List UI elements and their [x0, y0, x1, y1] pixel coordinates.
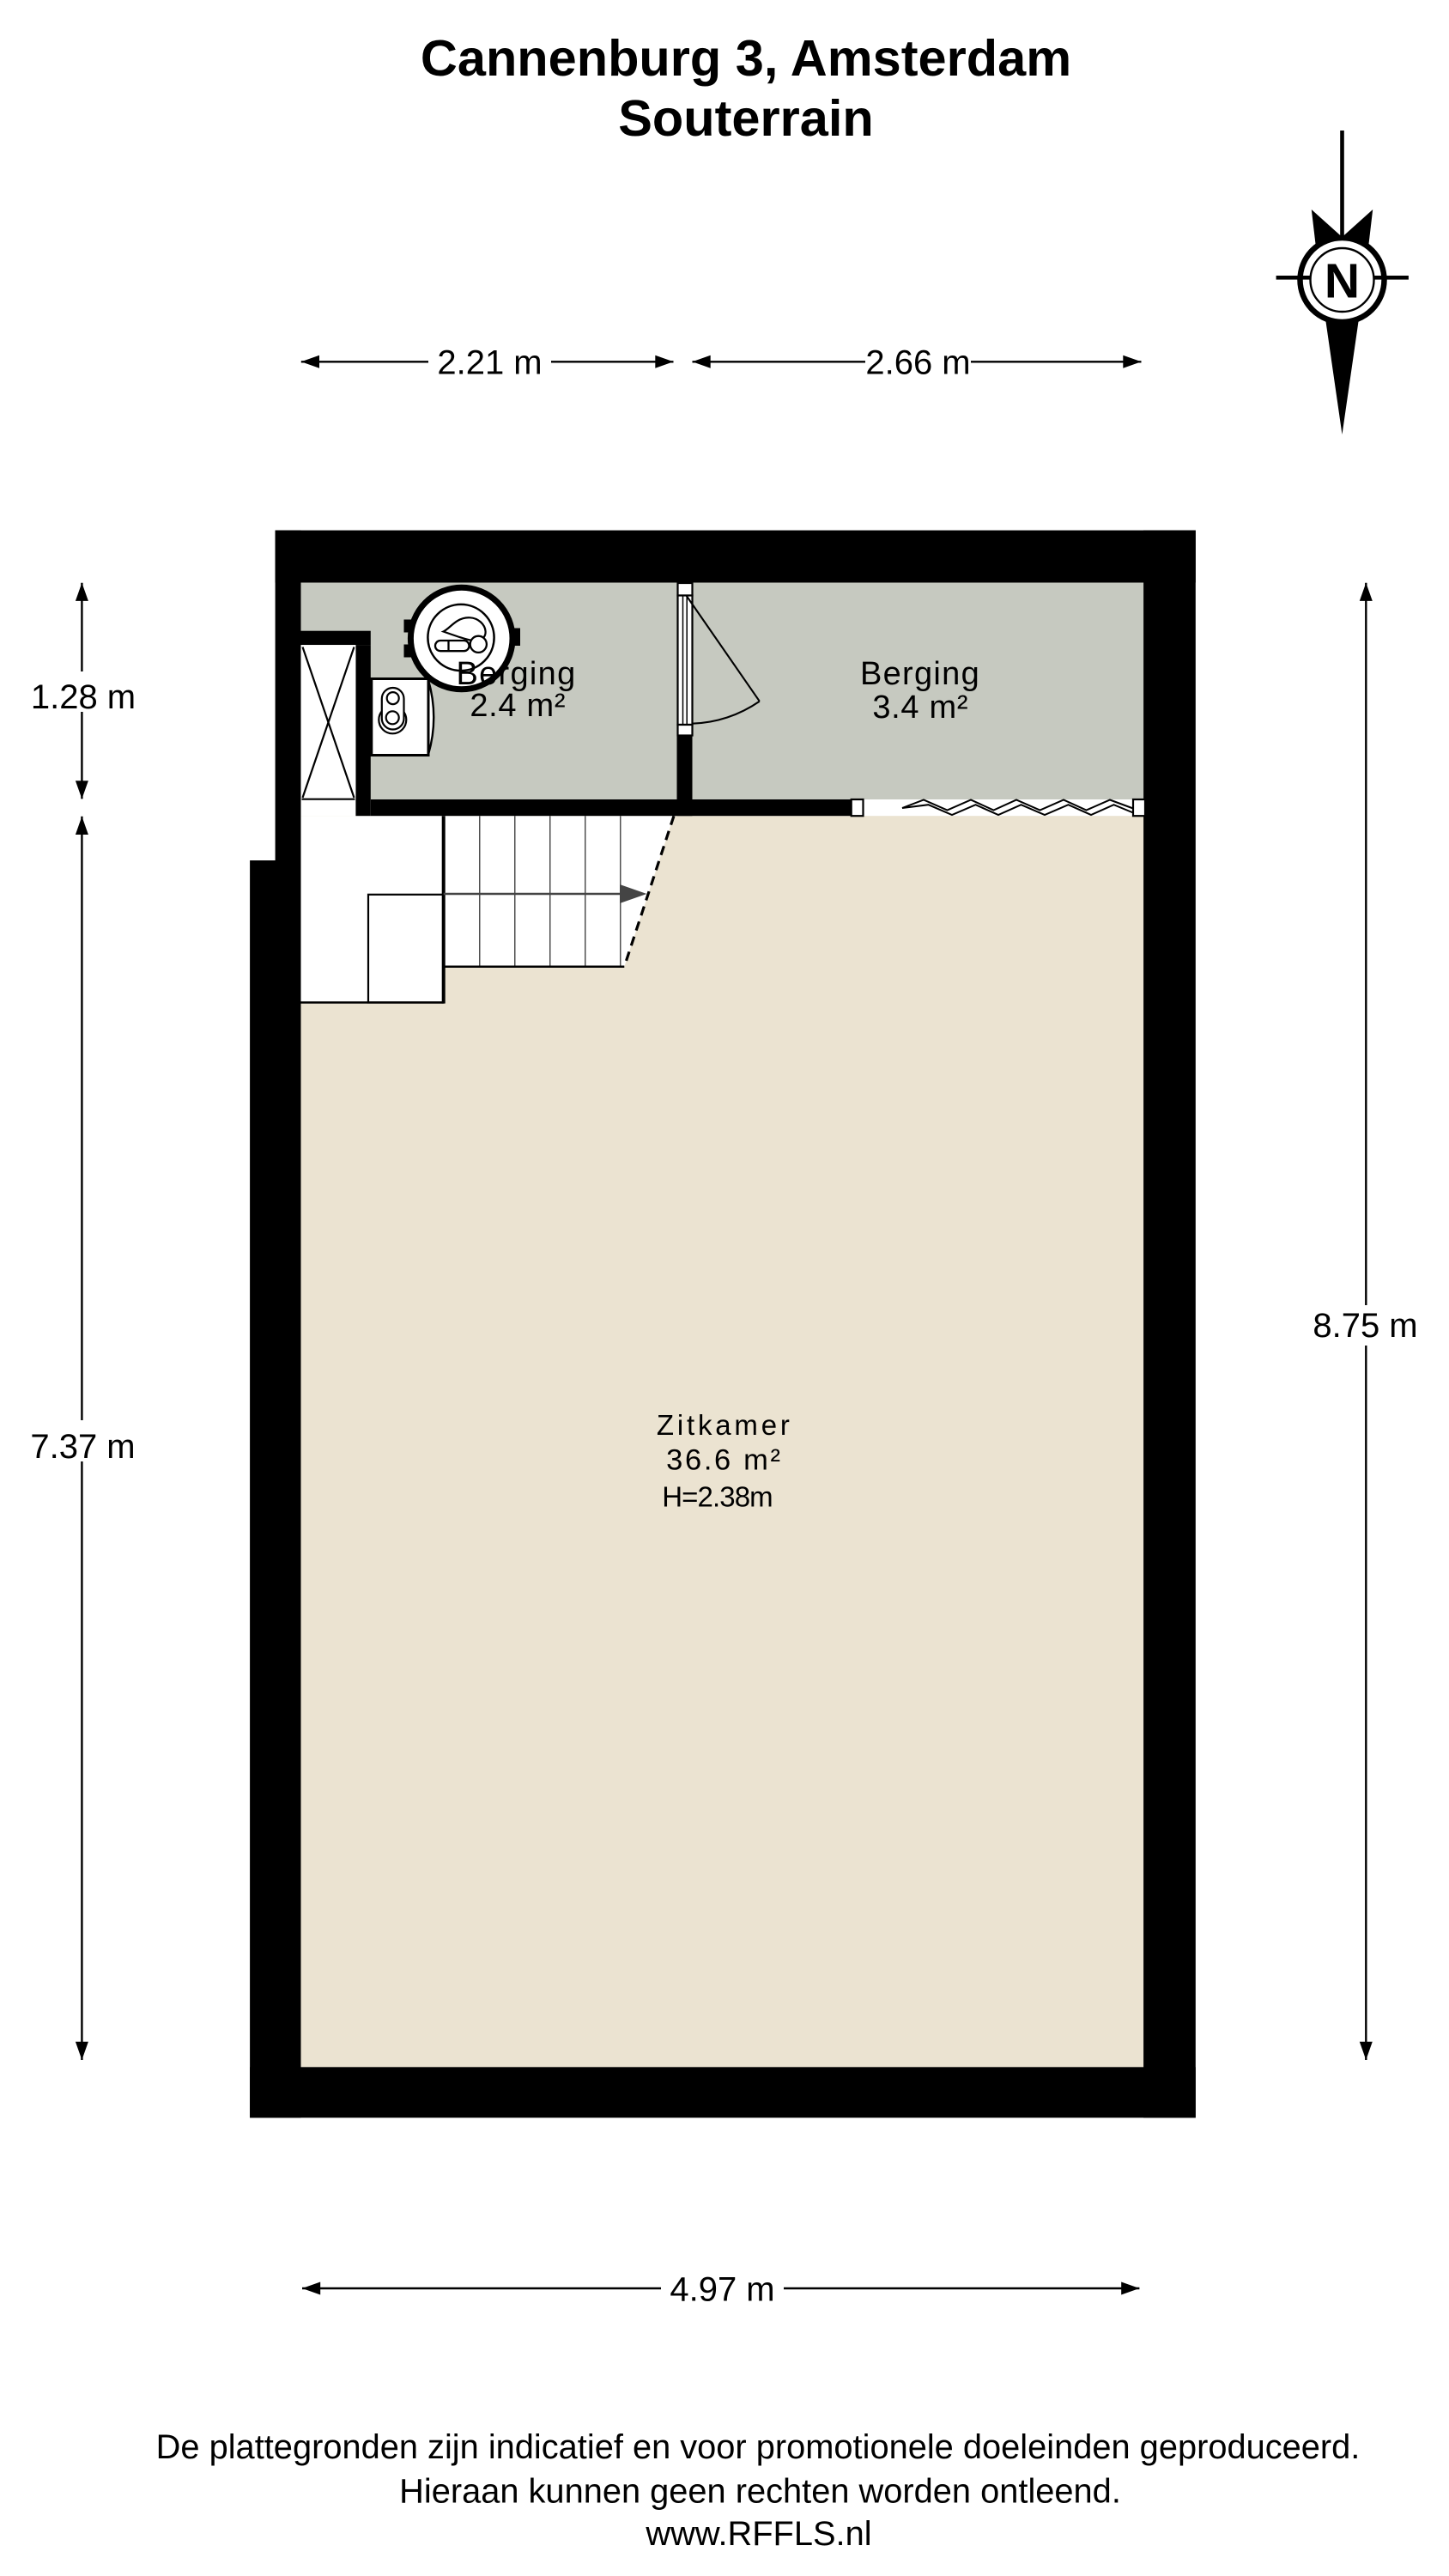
svg-text:H=2.38m: H=2.38m	[662, 1481, 773, 1513]
svg-text:2.66 m: 2.66 m	[865, 343, 970, 381]
svg-text:1.28 m: 1.28 m	[31, 678, 136, 716]
svg-text:Zitkamer: Zitkamer	[657, 1409, 793, 1441]
svg-text:N: N	[1325, 254, 1360, 309]
svg-text:De plattegronden zijn indicati: De plattegronden zijn indicatief en voor…	[156, 2428, 1361, 2466]
svg-text:8.75 m: 8.75 m	[1313, 1307, 1417, 1345]
svg-text:7.37 m: 7.37 m	[30, 1428, 135, 1466]
svg-text:3.4 m²: 3.4 m²	[872, 690, 968, 726]
svg-text:Hieraan kunnen geen rechten wo: Hieraan kunnen geen rechten worden ontle…	[399, 2473, 1121, 2511]
svg-text:Berging: Berging	[456, 656, 576, 692]
svg-text:2.4 m²: 2.4 m²	[470, 688, 566, 724]
svg-text:Berging: Berging	[860, 656, 980, 692]
svg-text:36.6 m²: 36.6 m²	[666, 1444, 783, 1477]
svg-text:Cannenburg 3, Amsterdam: Cannenburg 3, Amsterdam	[421, 29, 1071, 87]
svg-text:4.97 m: 4.97 m	[670, 2270, 774, 2308]
svg-text:www.RFFLS.nl: www.RFFLS.nl	[645, 2515, 871, 2553]
svg-text:Souterrain: Souterrain	[618, 89, 874, 147]
svg-text:2.21 m: 2.21 m	[437, 343, 542, 381]
